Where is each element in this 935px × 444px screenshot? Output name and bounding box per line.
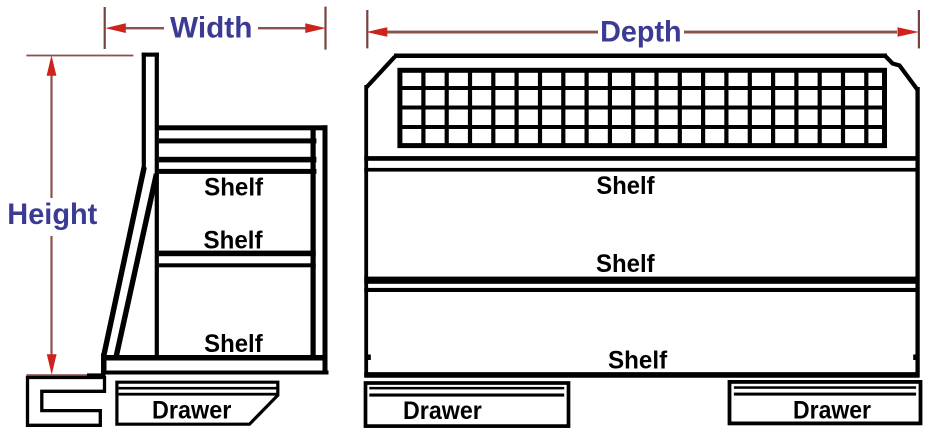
svg-text:Drawer: Drawer	[403, 397, 482, 425]
svg-text:Shelf: Shelf	[204, 330, 263, 358]
svg-text:Depth: Depth	[600, 16, 682, 49]
svg-text:Width: Width	[170, 12, 252, 45]
svg-text:Drawer: Drawer	[152, 396, 232, 424]
svg-text:Shelf: Shelf	[596, 172, 655, 200]
svg-text:Shelf: Shelf	[596, 250, 655, 278]
svg-text:Shelf: Shelf	[204, 226, 264, 254]
svg-text:Shelf: Shelf	[204, 174, 264, 202]
svg-text:Shelf: Shelf	[608, 346, 668, 374]
svg-text:Height: Height	[7, 198, 97, 231]
svg-text:Drawer: Drawer	[793, 397, 871, 425]
